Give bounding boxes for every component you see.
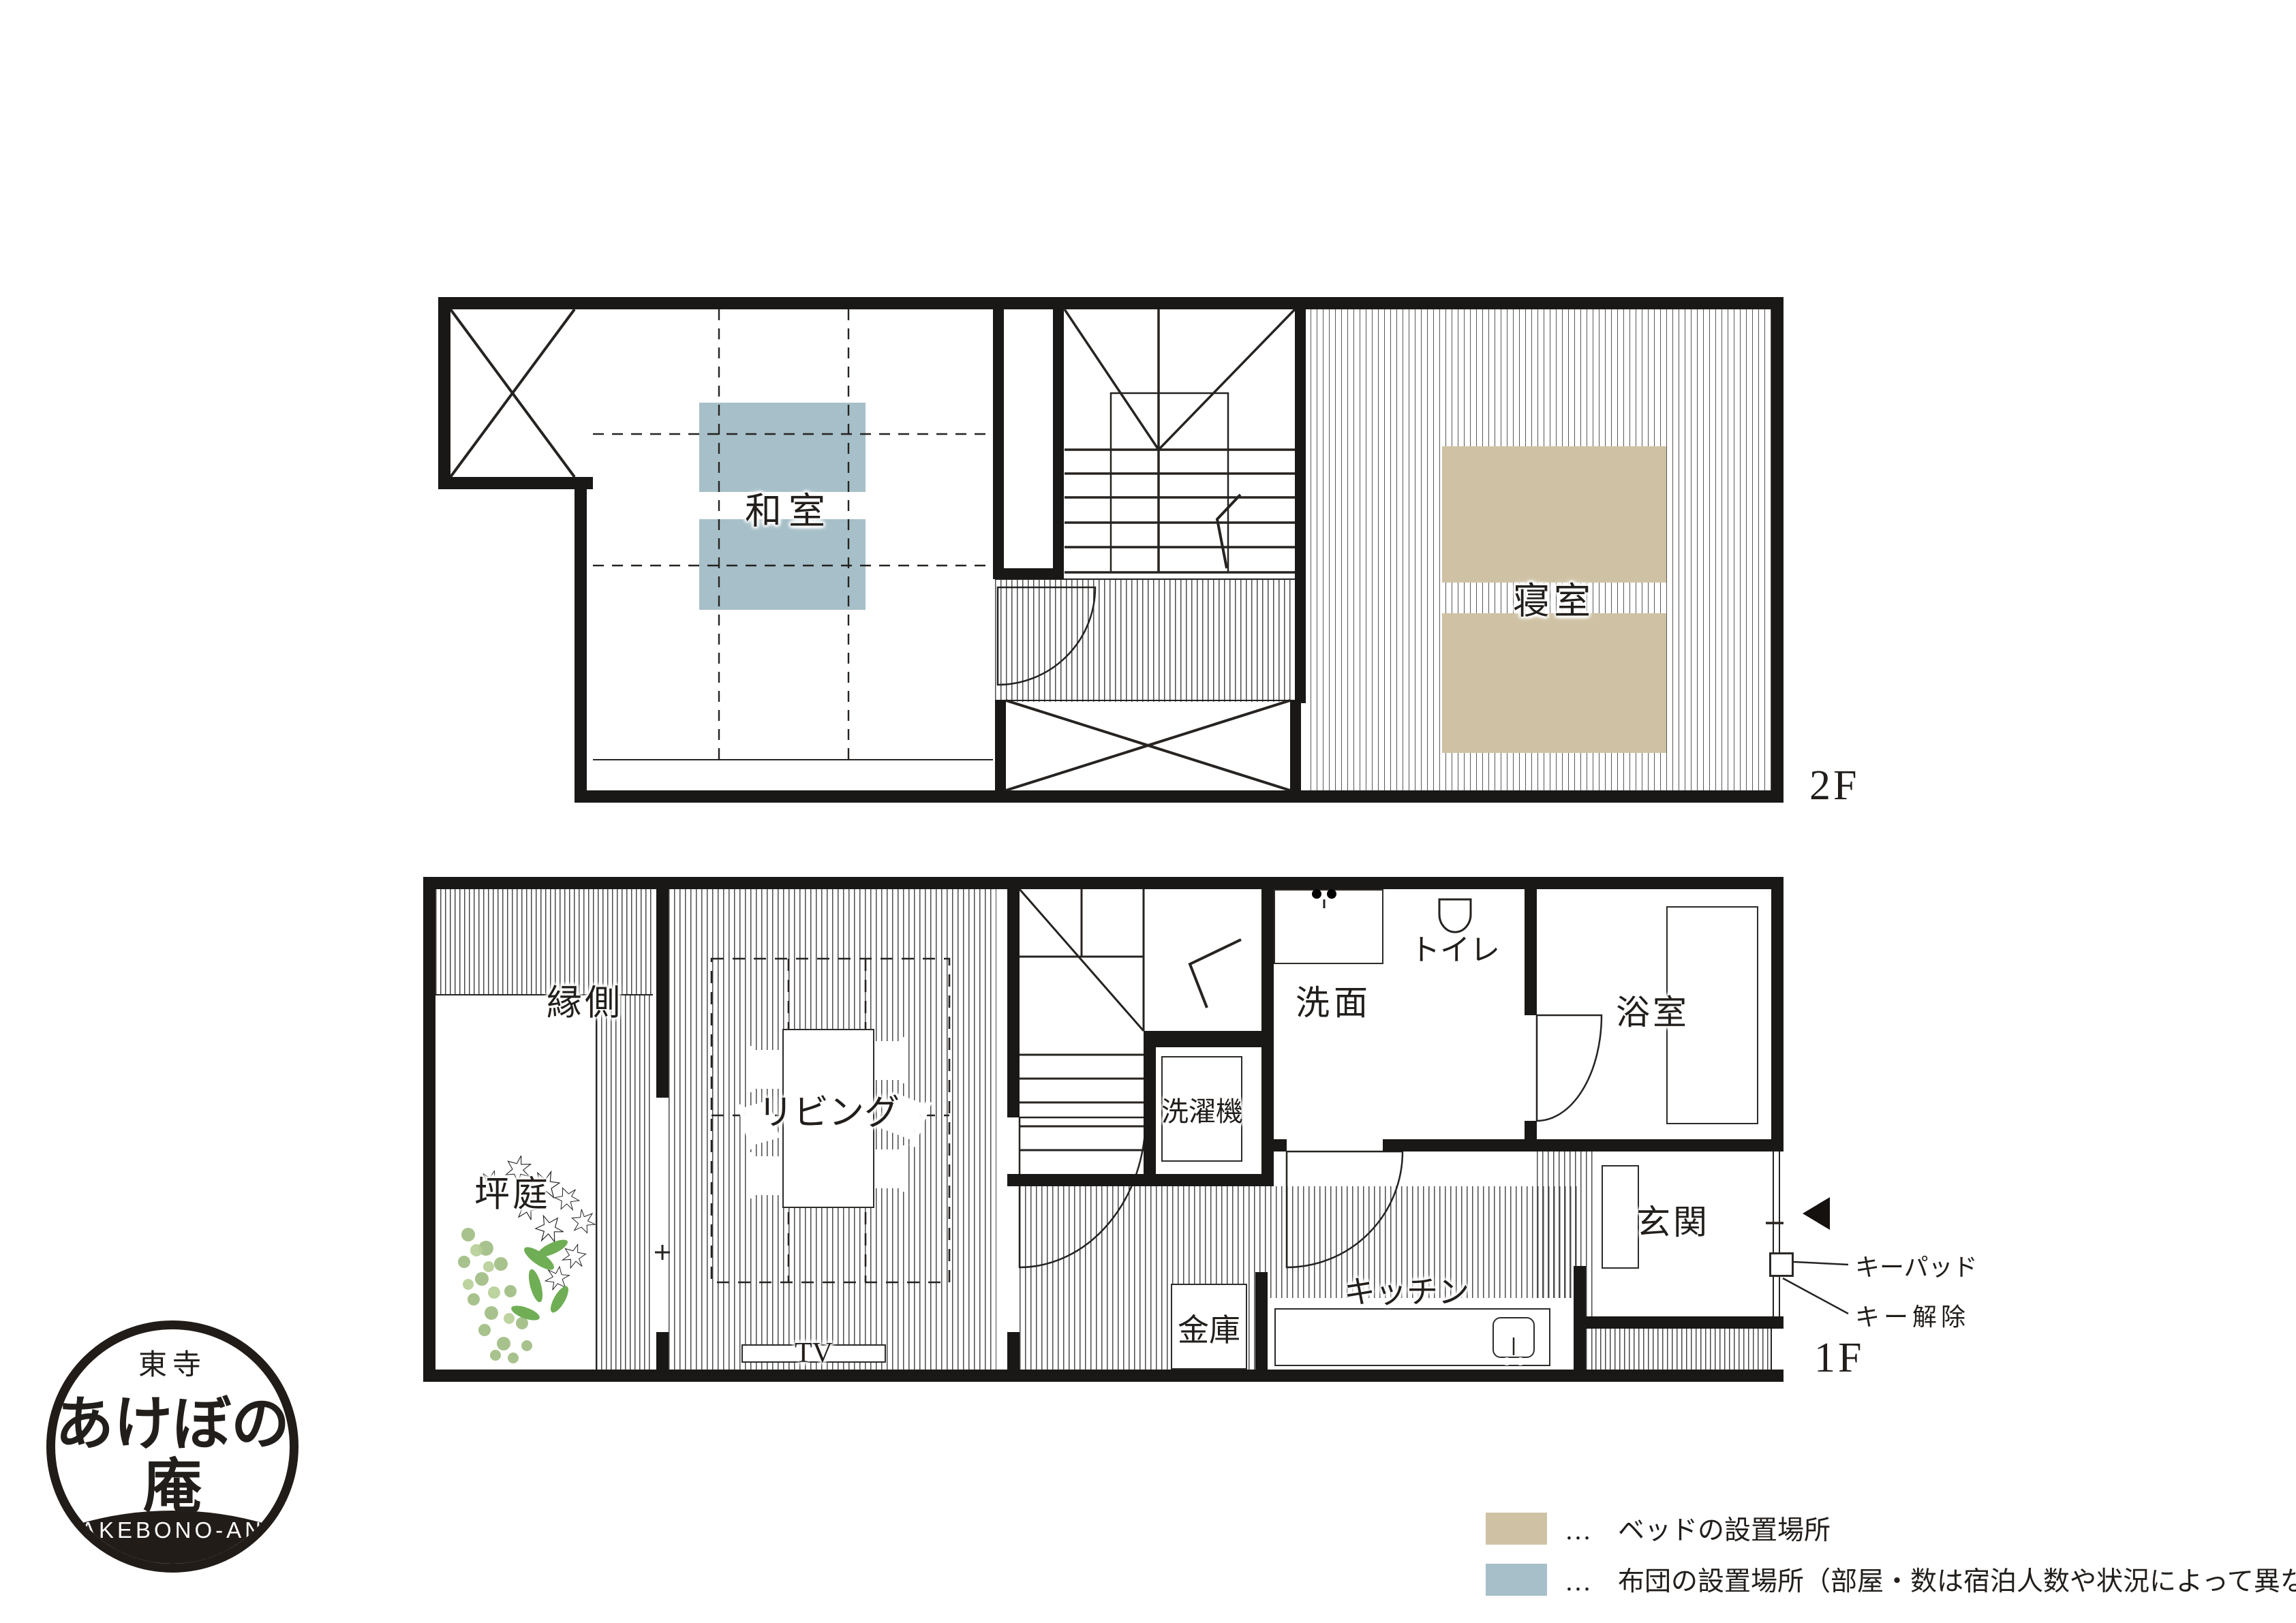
opening-tick bbox=[655, 1245, 670, 1260]
room-label-toire: トイレ bbox=[1410, 925, 1500, 969]
wall-segment bbox=[1290, 700, 1301, 790]
wall-segment bbox=[1144, 1047, 1156, 1174]
chair bbox=[750, 1152, 782, 1199]
wall-segment bbox=[1261, 877, 1274, 1174]
logo-romaji-text: AKEBONO-AN bbox=[55, 1517, 290, 1543]
wall-segment bbox=[575, 790, 1784, 803]
wall-segment bbox=[1144, 1031, 1274, 1047]
wall-segment bbox=[1574, 1316, 1784, 1329]
wall-segment bbox=[1537, 1139, 1784, 1151]
floor-label-1f: 1F bbox=[1814, 1334, 1864, 1382]
plan-2f: 和室 寝室 bbox=[438, 297, 1784, 803]
plan-2f-linework bbox=[438, 297, 1784, 803]
room-label-senmen: 洗面 bbox=[1296, 976, 1372, 1025]
wall-segment bbox=[1007, 877, 1020, 1117]
chair bbox=[876, 1145, 908, 1192]
room-label-living: リビング bbox=[758, 1084, 900, 1135]
room-label-engawa: 縁側 bbox=[547, 974, 623, 1025]
room-label-tsuboniwa: 坪庭 bbox=[474, 1166, 551, 1217]
wall-segment bbox=[1295, 297, 1306, 703]
wall-segment bbox=[423, 877, 435, 1382]
door-arc-hall-senmen bbox=[1287, 1151, 1403, 1267]
legend-futon-label: … 布団の設置場所（部屋・数は宿泊人数や状況によって異なります。） bbox=[1565, 1560, 2296, 1598]
room-label-yokushitsu: 浴室 bbox=[1616, 985, 1689, 1034]
wall-segment bbox=[656, 1332, 669, 1370]
akebono-an-logo: 東寺 あけぼの 庵 AKEBONO-AN bbox=[46, 1320, 299, 1573]
void-x-bottom bbox=[1006, 700, 1290, 790]
wall-segment bbox=[1771, 297, 1784, 803]
door-arc-bathroom bbox=[1537, 1015, 1602, 1121]
floorplan-canvas: 和室 寝室 2F bbox=[0, 0, 2296, 1623]
wall-segment bbox=[438, 297, 450, 489]
floor-label-2f: 2F bbox=[1809, 762, 1859, 810]
annotation-key-release: キー解除 bbox=[1855, 1297, 1970, 1333]
wall-segment bbox=[1525, 877, 1537, 1015]
wall-segment bbox=[1383, 1139, 1537, 1151]
bed-color-swatch bbox=[1486, 1513, 1547, 1545]
logo-sub-text: 庵 bbox=[55, 1438, 290, 1524]
wall-segment bbox=[438, 477, 593, 489]
annotation-keypad: キーパッド bbox=[1855, 1248, 1978, 1283]
legend-row-bed: … ベッドの設置場所 bbox=[1486, 1509, 1831, 1547]
room-label-sentakuki: 洗濯機 bbox=[1161, 1089, 1243, 1129]
wall-segment bbox=[993, 568, 1064, 579]
legend-bed-label: … ベッドの設置場所 bbox=[1565, 1509, 1831, 1547]
wall-segment bbox=[575, 489, 587, 790]
wall-segment bbox=[1007, 1174, 1274, 1186]
room-label-kinko: 金庫 bbox=[1178, 1305, 1240, 1350]
wall-segment bbox=[995, 700, 1006, 790]
chair bbox=[876, 1037, 908, 1083]
void-x-top-left bbox=[450, 309, 575, 477]
kitchen-faucet bbox=[1503, 1338, 1525, 1365]
wall-segment bbox=[993, 309, 1004, 579]
tatami-grid bbox=[593, 309, 993, 760]
door-arc-corridor bbox=[998, 587, 1095, 685]
legend-row-futon: … 布団の設置場所（部屋・数は宿泊人数や状況によって異なります。） bbox=[1486, 1560, 2296, 1598]
futon-color-swatch bbox=[1486, 1564, 1547, 1596]
wall-segment bbox=[1255, 1272, 1268, 1382]
entrance-direction-arrow-icon bbox=[1803, 1197, 1830, 1230]
room-label-genkan: 玄関 bbox=[1636, 1195, 1710, 1244]
wall-segment bbox=[1274, 1139, 1287, 1151]
wall-segment bbox=[438, 297, 1784, 309]
room-label-washitsu: 和室 bbox=[745, 481, 832, 535]
wall-segment bbox=[656, 877, 669, 1098]
keypad-icon bbox=[1769, 1252, 1794, 1277]
room-label-kitchen: キッチン bbox=[1344, 1267, 1469, 1312]
door-arc-living-hall bbox=[1020, 1117, 1146, 1267]
staircase-2f bbox=[1065, 309, 1295, 572]
wall-segment bbox=[423, 877, 1784, 889]
wall-segment bbox=[1525, 1121, 1537, 1151]
plan-1f: 縁側 坪庭 リビング TV 金庫 キッチン 洗濯機 洗面 トイレ 浴室 玄関 bbox=[423, 877, 1784, 1382]
wall-segment bbox=[1771, 877, 1784, 1151]
wall-segment bbox=[1053, 309, 1064, 579]
washbasin bbox=[1297, 889, 1351, 954]
wall-segment bbox=[1007, 1332, 1020, 1370]
room-label-shinshitsu: 寝室 bbox=[1513, 571, 1595, 625]
room-label-tv: TV bbox=[795, 1337, 833, 1370]
